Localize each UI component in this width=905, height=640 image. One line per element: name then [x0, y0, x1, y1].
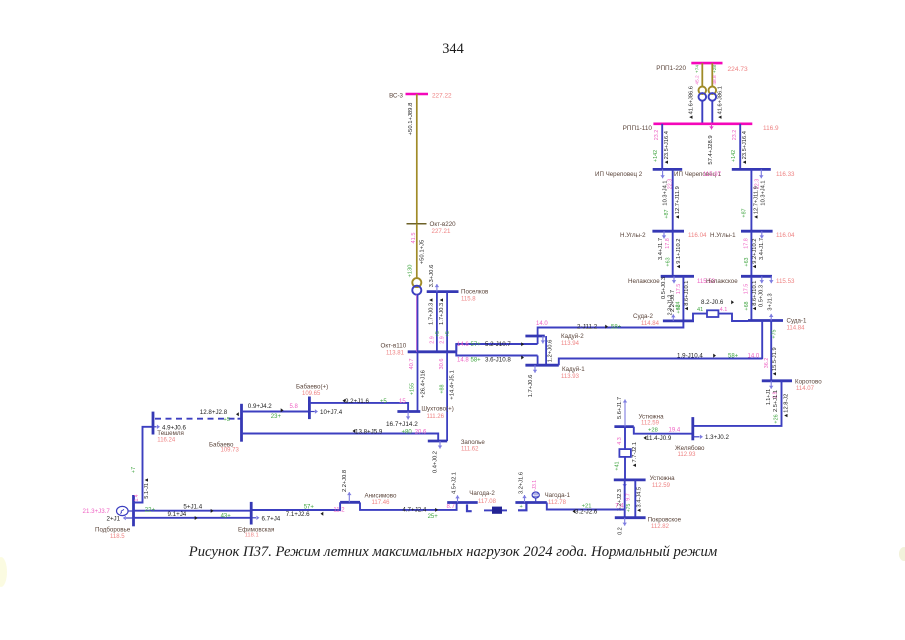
svg-text:7.1+J2.6: 7.1+J2.6 [286, 511, 310, 518]
svg-text:+63: +63 [744, 257, 750, 266]
svg-text:+21: +21 [582, 504, 592, 510]
svg-text:15: 15 [399, 399, 406, 405]
svg-text:12.8+J2.8: 12.8+J2.8 [200, 409, 228, 416]
svg-text:117.08: 117.08 [478, 499, 497, 505]
svg-text:9.2+J1.6: 9.2+J1.6 [345, 398, 369, 405]
svg-text:Коротово: Коротово [795, 378, 822, 385]
svg-text:14.0: 14.0 [536, 321, 548, 327]
svg-text:+80: +80 [402, 429, 413, 435]
svg-text:11.4-J0.9: 11.4-J0.9 [646, 435, 672, 442]
svg-text:115.97: 115.97 [703, 172, 722, 178]
svg-text:116.04: 116.04 [776, 232, 795, 239]
svg-text:40.7: 40.7 [409, 358, 415, 369]
svg-text:23.2: 23.2 [654, 130, 660, 141]
svg-text:+75: +75 [626, 504, 632, 513]
svg-text:Окт-в220: Окт-в220 [430, 221, 457, 228]
svg-text:+142: +142 [653, 150, 659, 162]
svg-text:+63: +63 [666, 257, 672, 266]
svg-text:7.4: 7.4 [615, 504, 624, 510]
svg-text:Суда-1: Суда-1 [787, 317, 807, 324]
svg-text:25+: 25+ [428, 514, 439, 520]
svg-text:1.4: 1.4 [134, 494, 140, 501]
svg-text:+50.1+J89.8: +50.1+J89.8 [408, 102, 414, 135]
svg-text:109.65: 109.65 [302, 391, 321, 397]
svg-text:3.2+J1.6: 3.2+J1.6 [519, 472, 525, 494]
svg-text:ВС-3: ВС-3 [389, 93, 403, 100]
svg-text:Бабаево(+): Бабаево(+) [296, 384, 328, 391]
svg-text:111.62: 111.62 [461, 447, 479, 453]
svg-text:5.6+J1.7: 5.6+J1.7 [617, 397, 623, 419]
svg-text:+50.1+J5: +50.1+J5 [419, 239, 425, 264]
svg-text:8.7: 8.7 [447, 504, 456, 510]
svg-text:Анисимово: Анисимово [365, 492, 397, 499]
svg-text:-J3.1: -J3.1 [532, 480, 538, 491]
svg-text:1.3+J0.2: 1.3+J0.2 [705, 434, 729, 441]
svg-text:224.73: 224.73 [728, 66, 749, 73]
svg-text:17.5: 17.5 [744, 284, 750, 295]
svg-text:17.8: 17.8 [744, 238, 750, 249]
svg-text:Заполье: Заполье [461, 439, 486, 446]
svg-text:0.2: 0.2 [618, 527, 624, 535]
svg-text:РПП1-220: РПП1-220 [656, 65, 686, 72]
svg-text:+5: +5 [435, 331, 441, 337]
svg-text:2.5+J1.1: 2.5+J1.1 [773, 390, 779, 412]
svg-text:▲3.4-J4.5: ▲3.4-J4.5 [636, 487, 642, 513]
svg-text:58+: 58+ [611, 324, 622, 330]
svg-text:+: + [520, 504, 523, 510]
svg-text:+87: +87 [664, 209, 670, 218]
svg-text:▲9.2+J10.2: ▲9.2+J10.2 [752, 239, 758, 270]
svg-text:30.6: 30.6 [439, 358, 445, 369]
svg-text:Устюжна: Устюжна [650, 475, 676, 482]
svg-text:111.26: 111.26 [427, 414, 445, 420]
svg-text:4.7+J2.4: 4.7+J2.4 [402, 506, 426, 513]
svg-text:17.8: 17.8 [665, 238, 671, 249]
svg-text:19.4: 19.4 [669, 428, 681, 434]
svg-text:4.5+J2.1: 4.5+J2.1 [451, 472, 457, 494]
svg-text:8.2-J0.6: 8.2-J0.6 [701, 299, 724, 306]
svg-text:36.2: 36.2 [764, 358, 770, 369]
svg-text:Кадуй-1: Кадуй-1 [562, 366, 585, 373]
svg-text:+75: +75 [772, 329, 778, 338]
svg-text:113.93: 113.93 [561, 374, 580, 380]
svg-text:1.2+J0.6: 1.2+J0.6 [547, 339, 553, 362]
svg-text:1.7+J0.3▲: 1.7+J0.3▲ [429, 297, 435, 325]
svg-text:112.59: 112.59 [641, 420, 660, 426]
svg-text:115.8: 115.8 [461, 297, 476, 303]
svg-text:11.2: 11.2 [333, 508, 345, 514]
svg-text:3.4+J1.7: 3.4+J1.7 [759, 238, 765, 260]
svg-text:16.7+J14.2: 16.7+J14.2 [386, 421, 418, 428]
svg-text:Поселков: Поселков [461, 289, 489, 296]
svg-text:3.4+J1.7: 3.4+J1.7 [658, 238, 664, 260]
svg-text:1.7+J0.3▲: 1.7+J0.3▲ [439, 297, 445, 325]
svg-text:41: 41 [697, 307, 703, 313]
svg-text:Чагода-1: Чагода-1 [545, 492, 571, 499]
svg-text:9.7: 9.7 [626, 493, 632, 501]
svg-text:57+: 57+ [471, 342, 482, 348]
svg-text:+28: +28 [712, 65, 718, 73]
svg-text:+41: +41 [615, 461, 621, 470]
svg-text:5.2-J10.7: 5.2-J10.7 [485, 341, 511, 348]
svg-text:3+J1.3: 3+J1.3 [767, 293, 773, 310]
svg-text:+155: +155 [409, 383, 415, 395]
svg-text:114.07: 114.07 [796, 386, 815, 392]
svg-text:114.84: 114.84 [787, 325, 806, 331]
svg-text:344: 344 [442, 41, 463, 57]
svg-text:3.3+J0.6: 3.3+J0.6 [429, 264, 435, 287]
svg-text:Покровское: Покровское [648, 516, 682, 523]
svg-text:▲12.8-J2: ▲12.8-J2 [784, 394, 790, 419]
svg-text:227.21: 227.21 [432, 228, 451, 235]
svg-text:+26: +26 [774, 414, 780, 423]
svg-text:4.1: 4.1 [720, 307, 728, 313]
svg-text:43+: 43+ [221, 514, 232, 520]
svg-text:21.3+J3.7: 21.3+J3.7 [83, 508, 111, 515]
svg-text:+7: +7 [131, 467, 137, 473]
svg-text:1.1+J1: 1.1+J1 [766, 389, 772, 405]
svg-text:1.9-J10.4: 1.9-J10.4 [677, 352, 703, 359]
svg-text:Нелажское: Нелажское [706, 278, 738, 285]
svg-text:9.1+J4: 9.1+J4 [168, 511, 187, 518]
svg-text:4.3: 4.3 [617, 437, 623, 445]
svg-text:57.4+J28.9: 57.4+J28.9 [708, 135, 714, 164]
svg-text:Желябово: Желябово [675, 445, 705, 452]
svg-text:Шухтово(+): Шухтово(+) [421, 406, 453, 413]
svg-text:Н.Углы-2: Н.Углы-2 [620, 232, 646, 239]
svg-text:▲8.6+J10.1: ▲8.6+J10.1 [684, 281, 690, 312]
svg-text:+5: +5 [380, 399, 388, 405]
svg-text:112.59: 112.59 [652, 483, 671, 489]
svg-text:РПП1-110: РПП1-110 [623, 125, 653, 132]
svg-text:Чагода-2: Чагода-2 [469, 490, 495, 497]
svg-text:4.9+J0.6: 4.9+J0.6 [162, 424, 186, 431]
svg-text:+142: +142 [731, 150, 737, 162]
svg-text:23+: 23+ [271, 414, 282, 420]
svg-text:113.94: 113.94 [561, 341, 580, 347]
svg-text:58+: 58+ [471, 358, 482, 364]
svg-text:116.04: 116.04 [688, 232, 707, 239]
svg-text:Кадуй-2: Кадуй-2 [561, 333, 584, 340]
svg-text:1.7+J0.6: 1.7+J0.6 [528, 374, 534, 397]
svg-text:2.3+J1.2: 2.3+J1.2 [668, 295, 674, 316]
svg-text:41.5: 41.5 [411, 232, 417, 243]
svg-text:Окт-в110: Окт-в110 [381, 343, 407, 350]
svg-text:5.1-J1▲: 5.1-J1▲ [144, 477, 150, 498]
svg-text:48.8: 48.8 [712, 75, 718, 85]
svg-text:2.2+J0.8: 2.2+J0.8 [342, 470, 348, 492]
svg-text:117.46: 117.46 [372, 500, 391, 506]
svg-text:+5: +5 [445, 331, 451, 337]
svg-text:20.6: 20.6 [415, 429, 427, 435]
svg-text:▲12.7+J11.9: ▲12.7+J11.9 [675, 186, 681, 220]
svg-text:116.33: 116.33 [776, 171, 795, 178]
svg-text:+28: +28 [648, 428, 658, 434]
svg-text:2+J1: 2+J1 [107, 516, 121, 523]
svg-text:+68: +68 [744, 301, 750, 310]
svg-text:116.24: 116.24 [157, 437, 176, 443]
svg-text:Подборовье: Подборовье [95, 527, 131, 534]
svg-text:ИП Череповец 2: ИП Череповец 2 [595, 171, 643, 178]
svg-text:3.6-J10.8: 3.6-J10.8 [485, 357, 511, 364]
svg-text:▲41.6+J86.1: ▲41.6+J86.1 [718, 86, 724, 120]
svg-text:23.2: 23.2 [732, 130, 738, 141]
svg-text:14.8: 14.8 [457, 358, 469, 364]
svg-text:109.73: 109.73 [221, 447, 240, 453]
svg-text:14.6: 14.6 [457, 342, 469, 348]
svg-text:114.84: 114.84 [641, 321, 660, 327]
svg-text:Нелажское: Нелажское [628, 278, 660, 285]
svg-text:+74: +74 [695, 65, 701, 73]
svg-text:10+J7.4: 10+J7.4 [320, 409, 343, 416]
svg-text:116.9: 116.9 [763, 125, 779, 132]
svg-text:115.53: 115.53 [776, 278, 795, 285]
svg-text:Рисунок П37. Режим летних мак: Рисунок П37. Режим летних максимальных н… [188, 544, 717, 560]
svg-text:0.9+J4.2: 0.9+J4.2 [248, 403, 272, 410]
svg-text:57+: 57+ [304, 504, 315, 510]
svg-text:113.81: 113.81 [386, 351, 405, 357]
svg-text:▲7.7-J2.1: ▲7.7-J2.1 [632, 442, 638, 468]
svg-text:▲12.7+J11.9: ▲12.7+J11.9 [754, 186, 760, 220]
svg-text:58+: 58+ [728, 353, 739, 359]
svg-text:▲15.5-J1.9: ▲15.5-J1.9 [772, 347, 778, 376]
svg-text:10.3+J4.1: 10.3+J4.1 [662, 180, 668, 205]
svg-text:13.8+J5.9: 13.8+J5.9 [355, 428, 383, 435]
svg-text:227.22: 227.22 [432, 93, 452, 100]
svg-text:+88: +88 [439, 384, 445, 393]
svg-text:+26.4+J16: +26.4+J16 [420, 369, 426, 398]
svg-text:▲23.5+J16.4: ▲23.5+J16.4 [664, 131, 670, 165]
svg-text:+5: +5 [223, 417, 230, 423]
svg-text:14.0: 14.0 [748, 353, 760, 359]
svg-text:+14.4+J5.1: +14.4+J5.1 [449, 370, 455, 399]
svg-text:45.2: 45.2 [695, 75, 701, 85]
svg-text:17.5: 17.5 [676, 284, 682, 295]
svg-text:+24: +24 [675, 301, 681, 310]
svg-text:▲23.5+J16.4: ▲23.5+J16.4 [742, 131, 748, 165]
svg-text:0.5+J0.3: 0.5+J0.3 [758, 285, 764, 307]
svg-text:22+: 22+ [145, 508, 156, 514]
svg-text:Н.Углы-1: Н.Углы-1 [710, 232, 736, 239]
svg-text:112.82: 112.82 [651, 524, 670, 530]
svg-text:10.3+J4.1: 10.3+J4.1 [761, 180, 767, 205]
svg-text:▲9.1+J10.2: ▲9.1+J10.2 [676, 239, 682, 270]
svg-text:6.7+J4: 6.7+J4 [262, 515, 281, 522]
svg-text:Суда-2: Суда-2 [633, 313, 653, 320]
svg-text:+87: +87 [742, 208, 748, 217]
svg-text:0.5+J0.3: 0.5+J0.3 [661, 277, 667, 299]
svg-text:5+J1.4: 5+J1.4 [183, 503, 202, 510]
svg-text:0.4+J0.2: 0.4+J0.2 [433, 451, 439, 473]
svg-text:+130: +130 [408, 265, 414, 278]
svg-text:▲8.6+J10.1: ▲8.6+J10.1 [752, 281, 758, 312]
svg-text:▲41.6+J86.6: ▲41.6+J86.6 [688, 86, 694, 120]
svg-text:112.93: 112.93 [678, 452, 697, 458]
svg-text:118.5: 118.5 [110, 534, 125, 540]
svg-text:118.1: 118.1 [245, 533, 259, 539]
svg-text:112.78: 112.78 [548, 500, 567, 506]
svg-text:5.8: 5.8 [290, 404, 299, 410]
svg-text:2-J11.2: 2-J11.2 [577, 323, 598, 330]
